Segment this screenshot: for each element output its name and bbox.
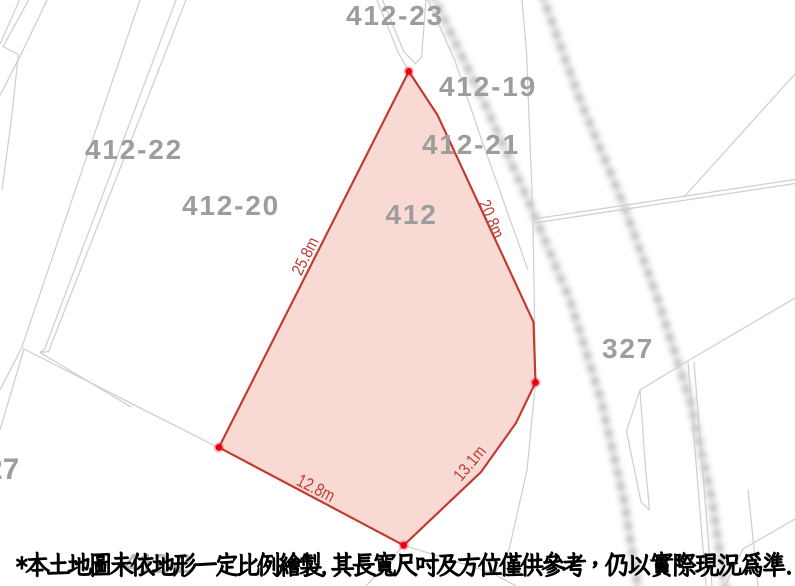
- svg-text:412-21: 412-21: [422, 129, 520, 160]
- svg-text:412-20: 412-20: [182, 190, 280, 221]
- svg-text:327: 327: [602, 333, 654, 364]
- svg-text:412: 412: [386, 199, 438, 230]
- svg-text:27: 27: [0, 453, 19, 486]
- svg-text:412-19: 412-19: [439, 71, 537, 102]
- svg-text:412-22: 412-22: [85, 134, 183, 165]
- svg-text:412-23: 412-23: [346, 0, 444, 31]
